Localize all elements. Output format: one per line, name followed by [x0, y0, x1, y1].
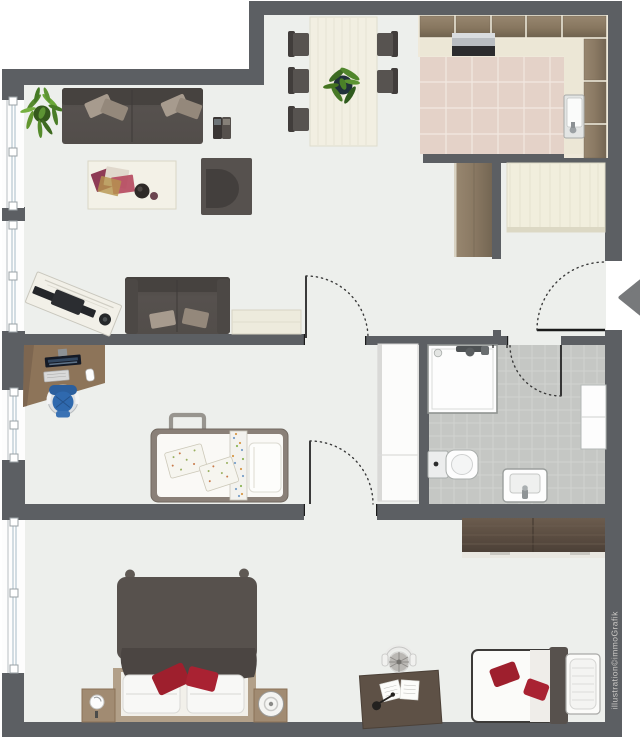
- svg-text:illustration©immoGrafik: illustration©immoGrafik: [610, 611, 620, 710]
